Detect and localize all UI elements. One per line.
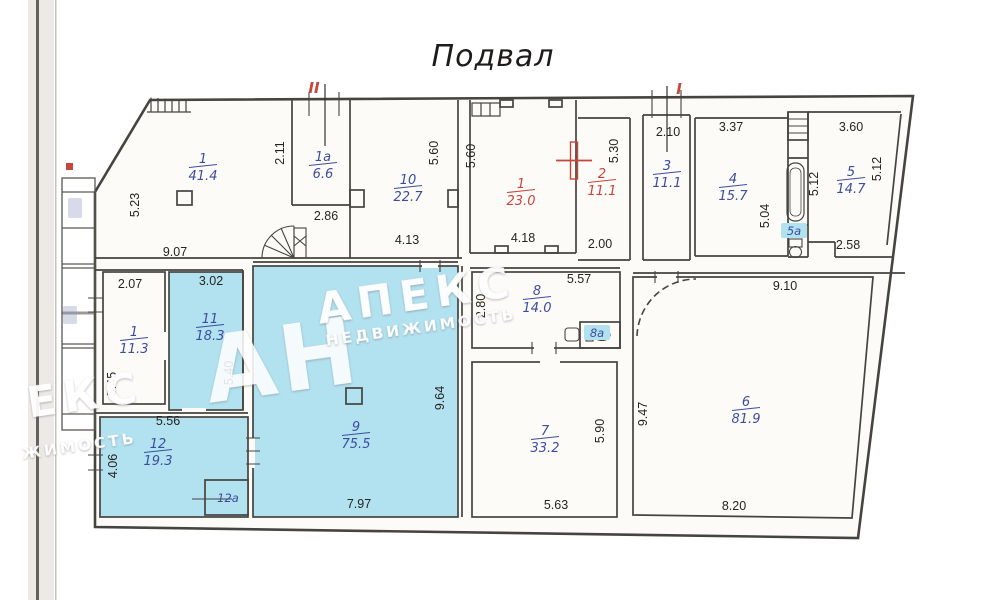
room-area: 14.0 [523,301,552,316]
room-number: 1 [517,177,525,192]
room-area: 14.7 [837,182,867,197]
room-number: 12а [217,491,239,505]
illegible-label [63,306,77,324]
dimension-label: 9.10 [773,279,797,293]
scan-edge-artifact [28,0,57,600]
room-number: 4 [729,172,737,187]
room-area: 11.3 [120,342,149,357]
illegible-label [68,198,82,218]
room-number: 8 [533,284,541,299]
room-number: 8а [590,326,604,340]
dimension-label: 2.10 [656,125,680,139]
dimension-label: 5.30 [607,139,621,163]
dimension-label: 5.90 [593,419,607,443]
dimension-label: 4.06 [106,454,120,478]
dimension-label: 9.64 [433,386,447,410]
room-area: 19.3 [144,454,173,469]
dimension-label: 4.18 [511,231,535,245]
dimension-label: 5.12 [807,172,821,196]
dimension-label: 5.04 [758,204,772,228]
room-number: 1 [199,152,207,167]
room-number: 6 [742,395,750,410]
dimension-label: 9.47 [636,402,650,426]
dimension-label: 2.58 [836,238,860,252]
entry-marker-I: I [676,80,682,98]
room-number: 2 [598,167,606,182]
dimension-label: 9.07 [163,245,187,259]
room-number: 1 [130,325,138,340]
room-number: 3 [663,159,671,174]
room-area: 11.1 [588,184,617,199]
room-label-12а: 12а [217,491,239,505]
dimension-label: 4.13 [395,233,419,247]
dimension-label: 5.60 [464,144,478,168]
room-area: 15.7 [719,189,749,204]
room-number: 5 [847,165,855,180]
dimension-label: 5.23 [128,193,142,217]
dimension-label: 2.11 [273,141,287,164]
room-number: 12 [150,437,167,452]
room-number: 9 [352,420,360,435]
room-area: 22.7 [394,190,424,205]
plan-title: Подвал [432,39,555,74]
dimension-label: 5.12 [870,157,884,181]
room-number: 1а [315,150,331,165]
entry-markers: III [308,79,682,98]
dimension-label: 3.02 [199,274,223,288]
dimension-label: 5.60 [427,141,441,165]
room-label-8а: 8а [584,325,610,340]
entry-marker-II: II [308,79,320,97]
room-number: 5а [787,224,801,238]
dimension-label: 5.56 [156,414,180,428]
dimension-label: 2.00 [588,237,612,251]
room-area: 33.2 [531,441,560,456]
room-area: 75.5 [342,437,371,452]
dimension-label: 3.60 [839,120,863,134]
dimension-label: 8.20 [722,499,746,513]
room-number: 10 [400,173,417,188]
room-area: 6.6 [313,167,334,182]
dimension-label: 2.07 [118,277,142,291]
room-area: 11.1 [653,176,682,191]
room-area: 41.4 [189,169,218,184]
scanned-floor-plan-page: Подвал [0,0,1004,600]
dimension-label: 5.63 [544,498,568,512]
room-area: 81.9 [732,412,761,427]
dimension-label: 3.37 [719,120,743,134]
dimension-label: 7.97 [347,497,371,511]
dimension-label: 2.86 [314,209,338,223]
room-label-5а: 5а [781,223,807,238]
floor-plan: Подвал [0,0,1004,600]
red-tick [66,163,73,170]
room-number: 7 [541,424,550,439]
room-area: 23.0 [507,194,536,209]
dimension-label: 5.57 [567,272,591,286]
